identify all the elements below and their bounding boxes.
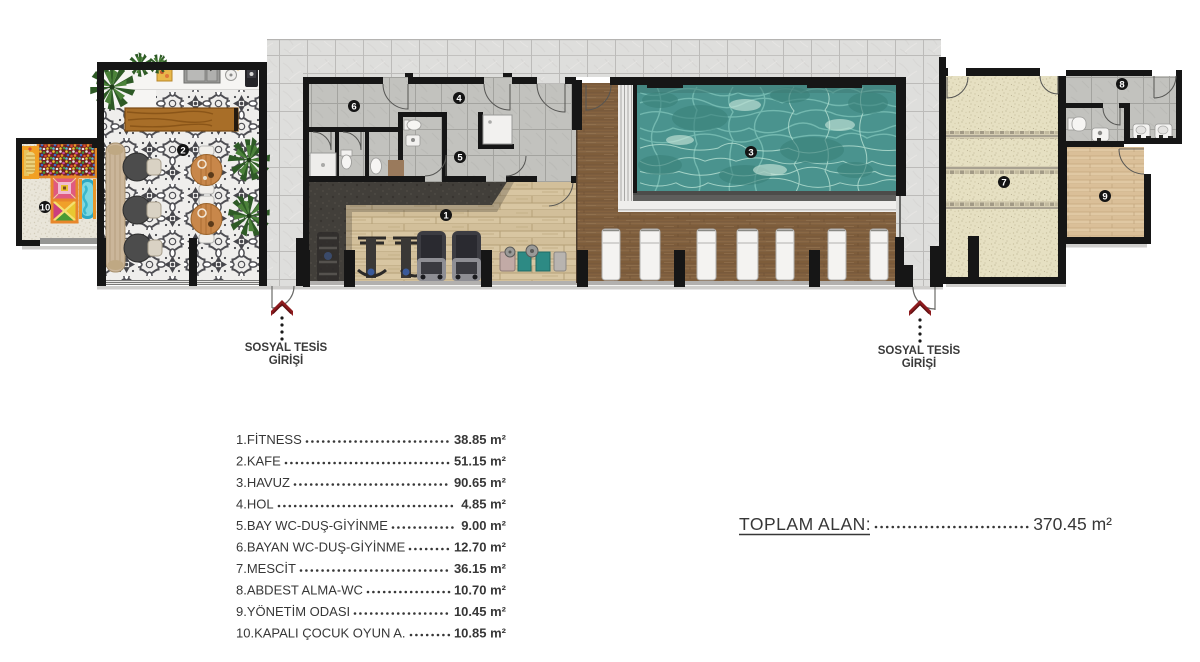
- svg-text:10.45 m²: 10.45 m²: [454, 604, 507, 619]
- svg-text:10.85 m²: 10.85 m²: [454, 626, 507, 641]
- svg-text:1: 1: [443, 210, 449, 221]
- svg-text:4.HOL: 4.HOL: [236, 497, 274, 512]
- svg-text:12.70 m²: 12.70 m²: [454, 540, 507, 555]
- svg-text:8: 8: [1119, 79, 1124, 90]
- svg-text:7.MESCİT: 7.MESCİT: [236, 561, 296, 576]
- svg-text:TOPLAM ALAN:: TOPLAM ALAN:: [739, 514, 871, 534]
- svg-text:SOSYAL TESİS: SOSYAL TESİS: [878, 344, 961, 357]
- svg-text:9.YÖNETİM ODASI: 9.YÖNETİM ODASI: [236, 604, 350, 619]
- svg-text:51.15 m²: 51.15 m²: [454, 454, 507, 469]
- svg-text:SOSYAL TESİS: SOSYAL TESİS: [245, 341, 328, 354]
- svg-text:36.15 m²: 36.15 m²: [454, 561, 507, 576]
- svg-text:10: 10: [40, 202, 51, 213]
- svg-text:3.HAVUZ: 3.HAVUZ: [236, 475, 290, 490]
- svg-text:4: 4: [456, 93, 462, 104]
- svg-text:1.FİTNESS: 1.FİTNESS: [236, 432, 302, 447]
- svg-text:10.KAPALI ÇOCUK OYUN A.: 10.KAPALI ÇOCUK OYUN A.: [236, 626, 406, 641]
- svg-text:2: 2: [180, 145, 185, 156]
- svg-text:GİRİŞİ: GİRİŞİ: [902, 357, 937, 370]
- svg-text:3: 3: [748, 147, 753, 158]
- svg-text:2.KAFE: 2.KAFE: [236, 454, 281, 469]
- svg-text:370.45 m²: 370.45 m²: [1033, 514, 1112, 534]
- svg-text:5: 5: [457, 152, 463, 163]
- svg-text:7: 7: [1001, 177, 1006, 188]
- svg-text:9: 9: [1102, 191, 1107, 202]
- svg-text:4.85 m²: 4.85 m²: [461, 497, 506, 512]
- svg-text:9.00 m²: 9.00 m²: [461, 518, 506, 533]
- svg-text:6: 6: [351, 101, 356, 112]
- svg-text:10.70 m²: 10.70 m²: [454, 583, 507, 598]
- svg-text:8.ABDEST ALMA-WC: 8.ABDEST ALMA-WC: [236, 583, 363, 598]
- svg-text:6.BAYAN WC-DUŞ-GİYİNME: 6.BAYAN WC-DUŞ-GİYİNME: [236, 540, 406, 555]
- svg-text:90.65 m²: 90.65 m²: [454, 475, 507, 490]
- svg-text:5.BAY WC-DUŞ-GİYİNME: 5.BAY WC-DUŞ-GİYİNME: [236, 518, 388, 533]
- svg-text:GİRİŞİ: GİRİŞİ: [269, 354, 304, 367]
- svg-text:38.85 m²: 38.85 m²: [454, 432, 507, 447]
